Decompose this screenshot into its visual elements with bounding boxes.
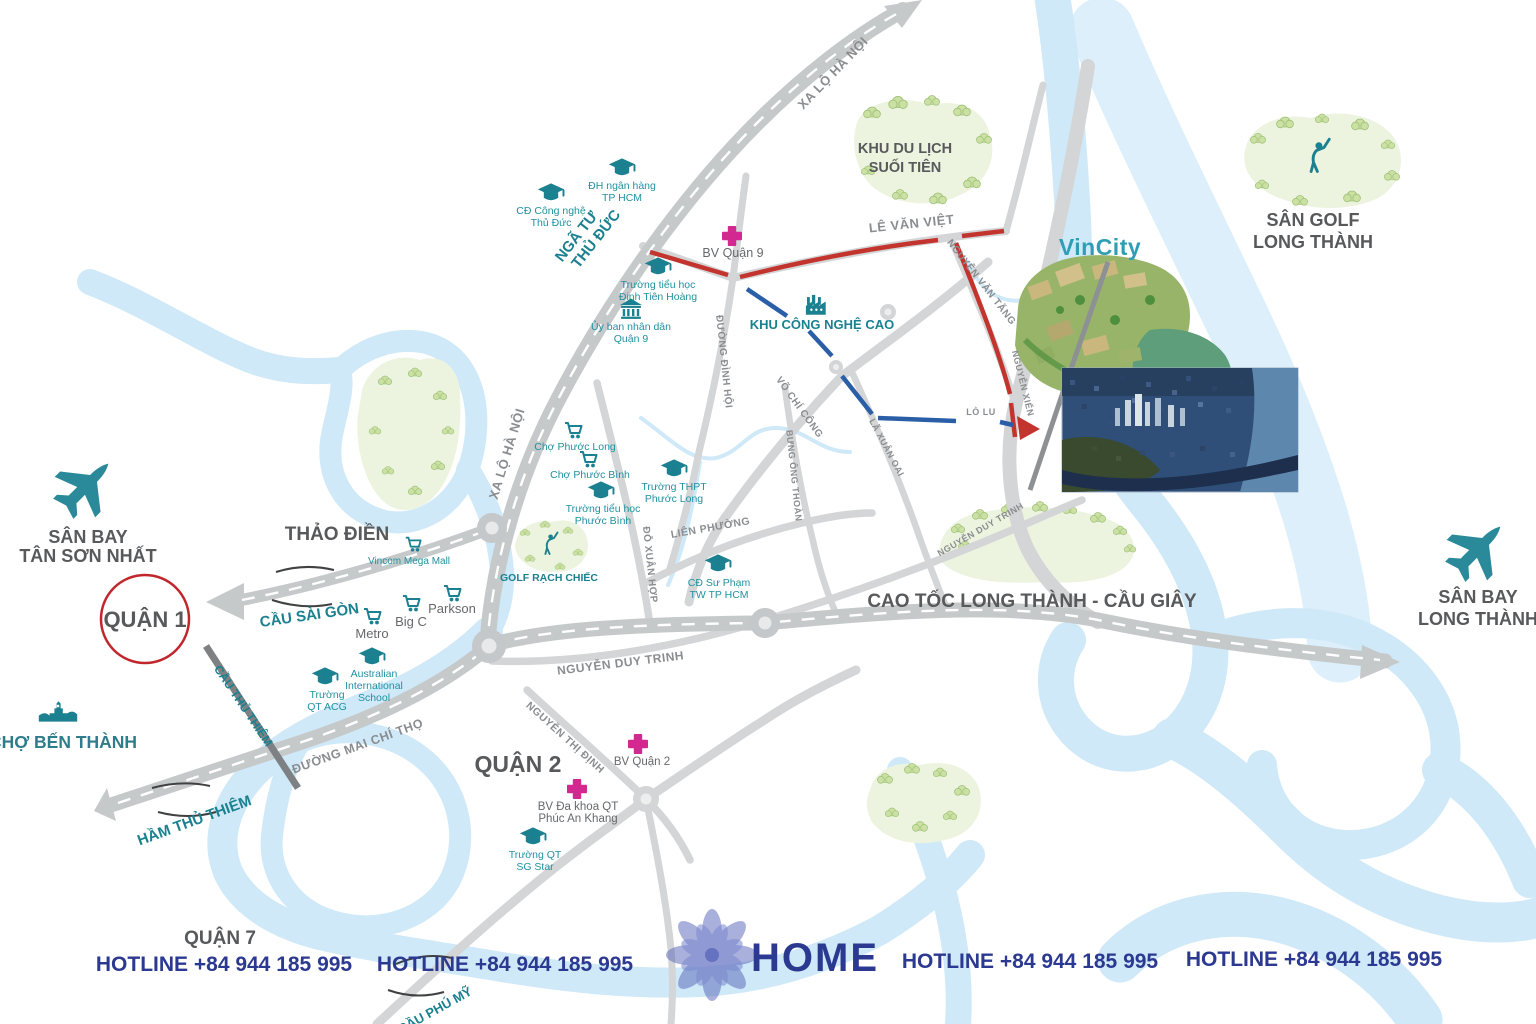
- cart-icon: [364, 609, 381, 624]
- bridge-label: CẦU THỦ THIÊM: [211, 662, 276, 749]
- poi-label: Trường tiểu học: [621, 279, 696, 291]
- landmark-label: KHU CÔNG NGHỆ CAO: [750, 317, 894, 332]
- poi-label: International: [345, 680, 403, 692]
- road-label: LÃ XUÂN OAI: [867, 417, 907, 479]
- logo-text: HOME: [751, 936, 879, 980]
- hotline-text: HOTLINE +84 944 185 995: [377, 953, 634, 976]
- hospital-label: Phúc An Khang: [538, 813, 617, 825]
- landmark-label: SÂN GOLF: [1267, 209, 1360, 230]
- district-label: QUẬN 7: [184, 927, 256, 949]
- graduation-cap-icon: [538, 183, 565, 200]
- airport-label: SÂN BAY: [48, 526, 127, 547]
- plane-icon: [43, 443, 129, 529]
- poi-label: Vincom Mega Mall: [368, 556, 450, 567]
- bridge-label: CẦU SÀI GÒN: [259, 599, 361, 631]
- poi-label: Chợ Phước Long: [534, 441, 616, 453]
- poi-label: Quận 9: [614, 333, 649, 345]
- poi-label: CĐ Sư Phạm: [688, 577, 751, 589]
- factory-icon: [806, 295, 826, 315]
- poi-label: Phước Long: [645, 493, 703, 505]
- district-label: QUẬN 1: [103, 607, 186, 632]
- landmark-label: KHU DU LỊCH: [858, 141, 952, 157]
- poi-label: Trường THPT: [641, 481, 707, 493]
- hospital-label: BV Quận 9: [702, 246, 763, 260]
- poi-label: Big C: [395, 614, 427, 629]
- arrow-west-icon: [206, 583, 244, 620]
- hospital-label: BV Đa khoa QT: [538, 801, 619, 813]
- airport-label: SÂN BAY: [1438, 586, 1517, 607]
- hospital-cross-icon: [568, 780, 586, 798]
- district-label: QUẬN 2: [475, 750, 562, 777]
- hotline-text: HOTLINE +84 944 185 995: [902, 950, 1159, 973]
- poi-label: SG Star: [516, 861, 554, 873]
- cart-icon: [580, 452, 597, 467]
- cart-icon: [565, 423, 582, 438]
- poi-label: Parkson: [428, 601, 476, 616]
- vincity-label: VinCity: [1059, 234, 1141, 260]
- poi-label: ĐH ngân hàng: [588, 180, 656, 192]
- hotline-text: HOTLINE +84 944 185 995: [1186, 948, 1443, 971]
- poi-label: TW TP HCM: [689, 589, 748, 601]
- cart-icon: [403, 596, 420, 611]
- hospital-label: BV Quận 2: [614, 756, 670, 768]
- cart-icon: [406, 538, 421, 552]
- hospital-cross-icon: [629, 735, 647, 753]
- roads: [94, 0, 1400, 1024]
- landmark-label: GOLF RẠCH CHIẾC: [500, 571, 598, 584]
- bridge-label: CẦU PHÚ MỸ: [395, 983, 475, 1024]
- route-red-arrow-icon: [1017, 416, 1040, 440]
- poi-label: Trường QT: [509, 849, 562, 861]
- poi-label: Australian: [351, 668, 398, 680]
- graduation-cap-icon: [359, 647, 386, 664]
- market-icon: [39, 701, 77, 721]
- poi-label: Trường tiểu học: [566, 503, 641, 515]
- graduation-cap-icon: [312, 667, 339, 684]
- poi-label: TP HCM: [602, 192, 642, 204]
- road-label: CAO TỐC LONG THÀNH - CẦU GIÂY: [867, 590, 1197, 612]
- poi-label: Metro: [355, 626, 388, 641]
- cart-icon: [444, 586, 461, 601]
- graduation-cap-icon: [588, 481, 615, 498]
- airport-label: TÂN SƠN NHẤT: [19, 545, 156, 566]
- poi-label: School: [358, 692, 390, 704]
- airport-label: LONG THÀNH: [1418, 608, 1536, 629]
- poi-label: Ủy ban nhân dân: [591, 320, 671, 333]
- landmark-label: CHỢ BẾN THÀNH: [0, 731, 137, 752]
- graduation-cap-icon: [661, 459, 688, 476]
- graduation-cap-icon: [609, 158, 636, 175]
- poi-label: CĐ Công nghệ: [516, 205, 586, 217]
- landmark-label: LONG THÀNH: [1253, 231, 1373, 252]
- poi-label: Chợ Phước Bình: [550, 469, 630, 481]
- flower-logo-icon: [666, 909, 758, 1001]
- location-map-svg: ĐH ngân hàng TP HCM CĐ Công nghệ Thủ Đức…: [0, 0, 1536, 1024]
- map-canvas: ĐH ngân hàng TP HCM CĐ Công nghệ Thủ Đức…: [0, 0, 1536, 1024]
- road-label: LÊ VĂN VIỆT: [868, 212, 955, 236]
- poi-label: Thủ Đức: [531, 217, 572, 229]
- poi-label: Phước Bình: [575, 515, 632, 527]
- poi-label: Trường: [309, 689, 344, 701]
- district-label: THẢO ĐIỀN: [285, 523, 390, 545]
- road-le-van-viet-north: [1006, 85, 1043, 231]
- graduation-cap-icon: [520, 827, 547, 844]
- road-label: LÒ LU: [966, 406, 996, 417]
- plane-icon: [1435, 506, 1521, 592]
- bridge-labels: NGÃ TƯ THỦ ĐỨC CẦU SÀI GÒN CẦU THỦ THIÊM…: [135, 195, 625, 1024]
- hotline-text: HOTLINE +84 944 185 995: [96, 953, 353, 976]
- aerial-photo-inset: [1062, 368, 1298, 492]
- poi-label: QT ACG: [307, 701, 346, 713]
- landmark-label: SUỐI TIÊN: [869, 158, 942, 176]
